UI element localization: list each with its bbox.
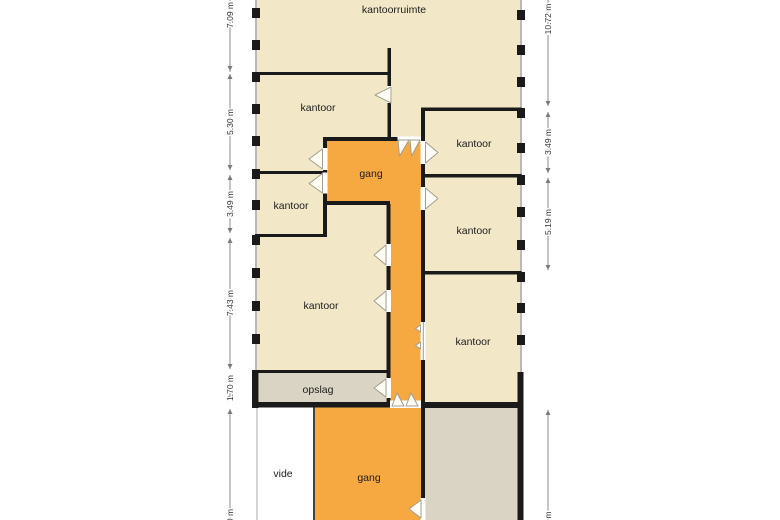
- dimension-label: 0 m: [225, 509, 235, 520]
- room-label-kantoor-right-3: kantoor: [455, 336, 491, 348]
- dimension-label: 7.43 m: [225, 290, 235, 316]
- room-vide-area: [258, 408, 313, 520]
- dimension-label: 5.30 m: [225, 109, 235, 135]
- dimension-label: 7.09 m: [225, 2, 235, 28]
- floorplan-page: kantoorruimte kantoor kantoor gang kanto…: [0, 0, 780, 520]
- room-grey-lower-right-area: [424, 408, 518, 520]
- room-label-kantoor-lower-left: kantoor: [303, 300, 339, 312]
- room-label-gang-lower: gang: [357, 472, 381, 484]
- dimension-label: 3.49 m: [225, 191, 235, 217]
- dimension-label: 10.72 m: [543, 4, 553, 35]
- dimensions-left: 7.09 m 5.30 m 3.49 m 7.43 m 1.70 m 0 m: [225, 0, 235, 520]
- room-label-kantoorruimte: kantoorruimte: [362, 4, 426, 16]
- room-label-vide: vide: [273, 468, 292, 480]
- room-label-kantoor-right-1: kantoor: [456, 138, 492, 150]
- dimensions-right: 10.72 m 3.49 m 5.19 m m: [543, 0, 553, 520]
- dimension-label: 3.49 m: [543, 129, 553, 155]
- room-label-gang-upper: gang: [359, 168, 383, 180]
- floorplan-canvas: kantoorruimte kantoor kantoor gang kanto…: [0, 0, 780, 520]
- room-label-kantoor-right-2: kantoor: [456, 225, 492, 237]
- room-label-kantoor-top-left: kantoor: [300, 102, 336, 114]
- room-label-opslag: opslag: [303, 384, 334, 396]
- vide-gang-divider: [313, 408, 315, 520]
- room-gang-lower-area: [315, 408, 421, 520]
- room-label-kantoor-mid-left: kantoor: [273, 200, 309, 212]
- dimension-label: 5.19 m: [543, 209, 553, 235]
- dimension-label: m: [543, 511, 553, 518]
- dimension-label: 1.70 m: [225, 375, 235, 401]
